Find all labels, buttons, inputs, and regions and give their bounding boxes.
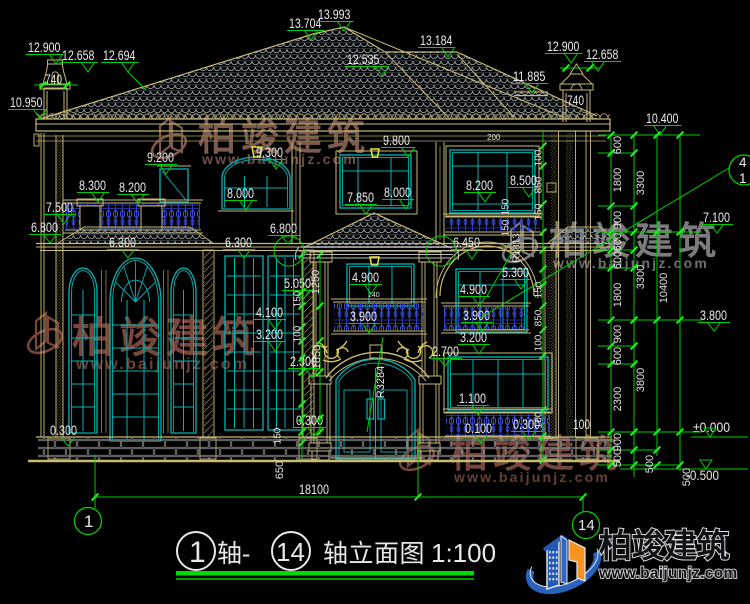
svg-text:100: 100 (293, 325, 304, 342)
svg-text:4: 4 (739, 155, 747, 170)
svg-text:150: 150 (293, 290, 304, 307)
svg-text:12.535: 12.535 (347, 52, 379, 67)
svg-text:4.900: 4.900 (460, 282, 487, 297)
svg-text:10400: 10400 (658, 273, 670, 304)
svg-text:600: 600 (612, 233, 624, 251)
svg-text:7.500: 7.500 (46, 200, 73, 215)
svg-text:10.950: 10.950 (10, 95, 42, 110)
svg-text:12.900: 12.900 (547, 39, 579, 54)
svg-text:6.300: 6.300 (109, 235, 136, 250)
svg-text:8.000: 8.000 (384, 185, 411, 200)
svg-text:850: 850 (534, 309, 545, 326)
svg-text:13.993: 13.993 (318, 7, 350, 22)
svg-text:12.658: 12.658 (586, 47, 618, 62)
svg-text:740: 740 (45, 72, 62, 87)
svg-text:1250: 1250 (310, 270, 322, 294)
svg-text:200: 200 (487, 133, 501, 142)
svg-text:1800: 1800 (612, 283, 624, 307)
svg-text:13.704: 13.704 (289, 16, 322, 31)
svg-text:500: 500 (644, 455, 656, 473)
svg-text:3.200: 3.200 (256, 327, 283, 342)
svg-text:3800: 3800 (635, 368, 647, 392)
svg-text:900: 900 (612, 433, 624, 451)
svg-text:5.050: 5.050 (284, 276, 311, 291)
svg-text:R3284: R3284 (375, 366, 387, 398)
svg-text:740: 740 (567, 93, 584, 108)
svg-text:100: 100 (573, 417, 590, 432)
svg-text:6.800: 6.800 (270, 221, 297, 236)
svg-text:150: 150 (534, 203, 545, 220)
svg-text:600: 600 (612, 251, 624, 269)
svg-text:150: 150 (273, 427, 284, 444)
svg-text:5.300: 5.300 (502, 265, 529, 280)
svg-text:850: 850 (534, 176, 545, 193)
svg-text:柏竣建筑: 柏竣建筑 (72, 314, 260, 361)
svg-text:7.100: 7.100 (703, 210, 730, 225)
svg-text:500: 500 (612, 449, 624, 467)
svg-text:650: 650 (274, 461, 286, 479)
svg-text:12.694: 12.694 (103, 48, 136, 63)
svg-text:2.700: 2.700 (432, 344, 459, 359)
svg-text:10.400: 10.400 (646, 111, 678, 126)
svg-text:6.800: 6.800 (31, 220, 58, 235)
svg-text:600: 600 (612, 347, 624, 365)
svg-text:1850: 1850 (311, 345, 323, 369)
svg-text:3300: 3300 (635, 265, 647, 289)
svg-text:1:100: 1:100 (431, 538, 496, 568)
svg-text:0.300: 0.300 (50, 423, 77, 438)
svg-text:1: 1 (189, 536, 206, 569)
svg-text:R1813: R1813 (512, 233, 523, 263)
svg-text:6.300: 6.300 (225, 235, 252, 250)
svg-text:9.200: 9.200 (147, 150, 174, 165)
svg-text:12.658: 12.658 (62, 48, 94, 63)
svg-text:150: 150 (534, 281, 545, 298)
svg-text:3300: 3300 (635, 171, 647, 195)
svg-text:11.885: 11.885 (513, 69, 545, 84)
svg-text:150: 150 (501, 219, 512, 236)
svg-text:www.baijunjz.com: www.baijunjz.com (598, 565, 738, 582)
svg-text:900: 900 (612, 325, 624, 343)
svg-text:1.100: 1.100 (459, 391, 486, 406)
svg-text:1: 1 (84, 512, 93, 531)
svg-text:1: 1 (739, 171, 747, 186)
svg-text:6.450: 6.450 (453, 235, 480, 250)
svg-text:14: 14 (276, 537, 305, 567)
svg-text:500: 500 (681, 468, 693, 486)
svg-text:13.184: 13.184 (420, 33, 453, 48)
svg-text:12.900: 12.900 (28, 40, 60, 55)
svg-text:8.200: 8.200 (466, 178, 493, 193)
svg-text:3.900: 3.900 (350, 309, 377, 324)
svg-text:100: 100 (534, 149, 545, 166)
svg-text:2300: 2300 (612, 387, 624, 411)
svg-text:18100: 18100 (299, 482, 329, 497)
svg-text:100: 100 (534, 411, 545, 428)
svg-text:600: 600 (612, 136, 624, 154)
svg-text:www.baijunjz.com: www.baijunjz.com (453, 469, 610, 485)
svg-text:4.900: 4.900 (352, 270, 379, 285)
svg-text:7.850: 7.850 (347, 190, 374, 205)
svg-text:9.300: 9.300 (256, 145, 283, 160)
svg-text:3.900: 3.900 (463, 308, 490, 323)
svg-text:150: 150 (501, 198, 512, 215)
svg-text:900: 900 (612, 211, 624, 229)
svg-text:0.100: 0.100 (465, 421, 492, 436)
svg-text:8.300: 8.300 (79, 178, 106, 193)
svg-text:4.100: 4.100 (256, 305, 283, 320)
svg-text:轴-: 轴- (217, 540, 250, 568)
svg-text:3.200: 3.200 (460, 330, 487, 345)
svg-text:柏竣建筑: 柏竣建筑 (599, 527, 730, 564)
svg-text:9.800: 9.800 (383, 133, 410, 148)
svg-text:3.800: 3.800 (700, 308, 727, 323)
svg-text:8.200: 8.200 (119, 180, 146, 195)
svg-text:轴立面图: 轴立面图 (323, 540, 425, 568)
svg-text:100: 100 (534, 334, 545, 351)
svg-text:8.000: 8.000 (227, 186, 254, 201)
svg-text:14: 14 (578, 517, 595, 534)
svg-text:1800: 1800 (612, 168, 624, 192)
